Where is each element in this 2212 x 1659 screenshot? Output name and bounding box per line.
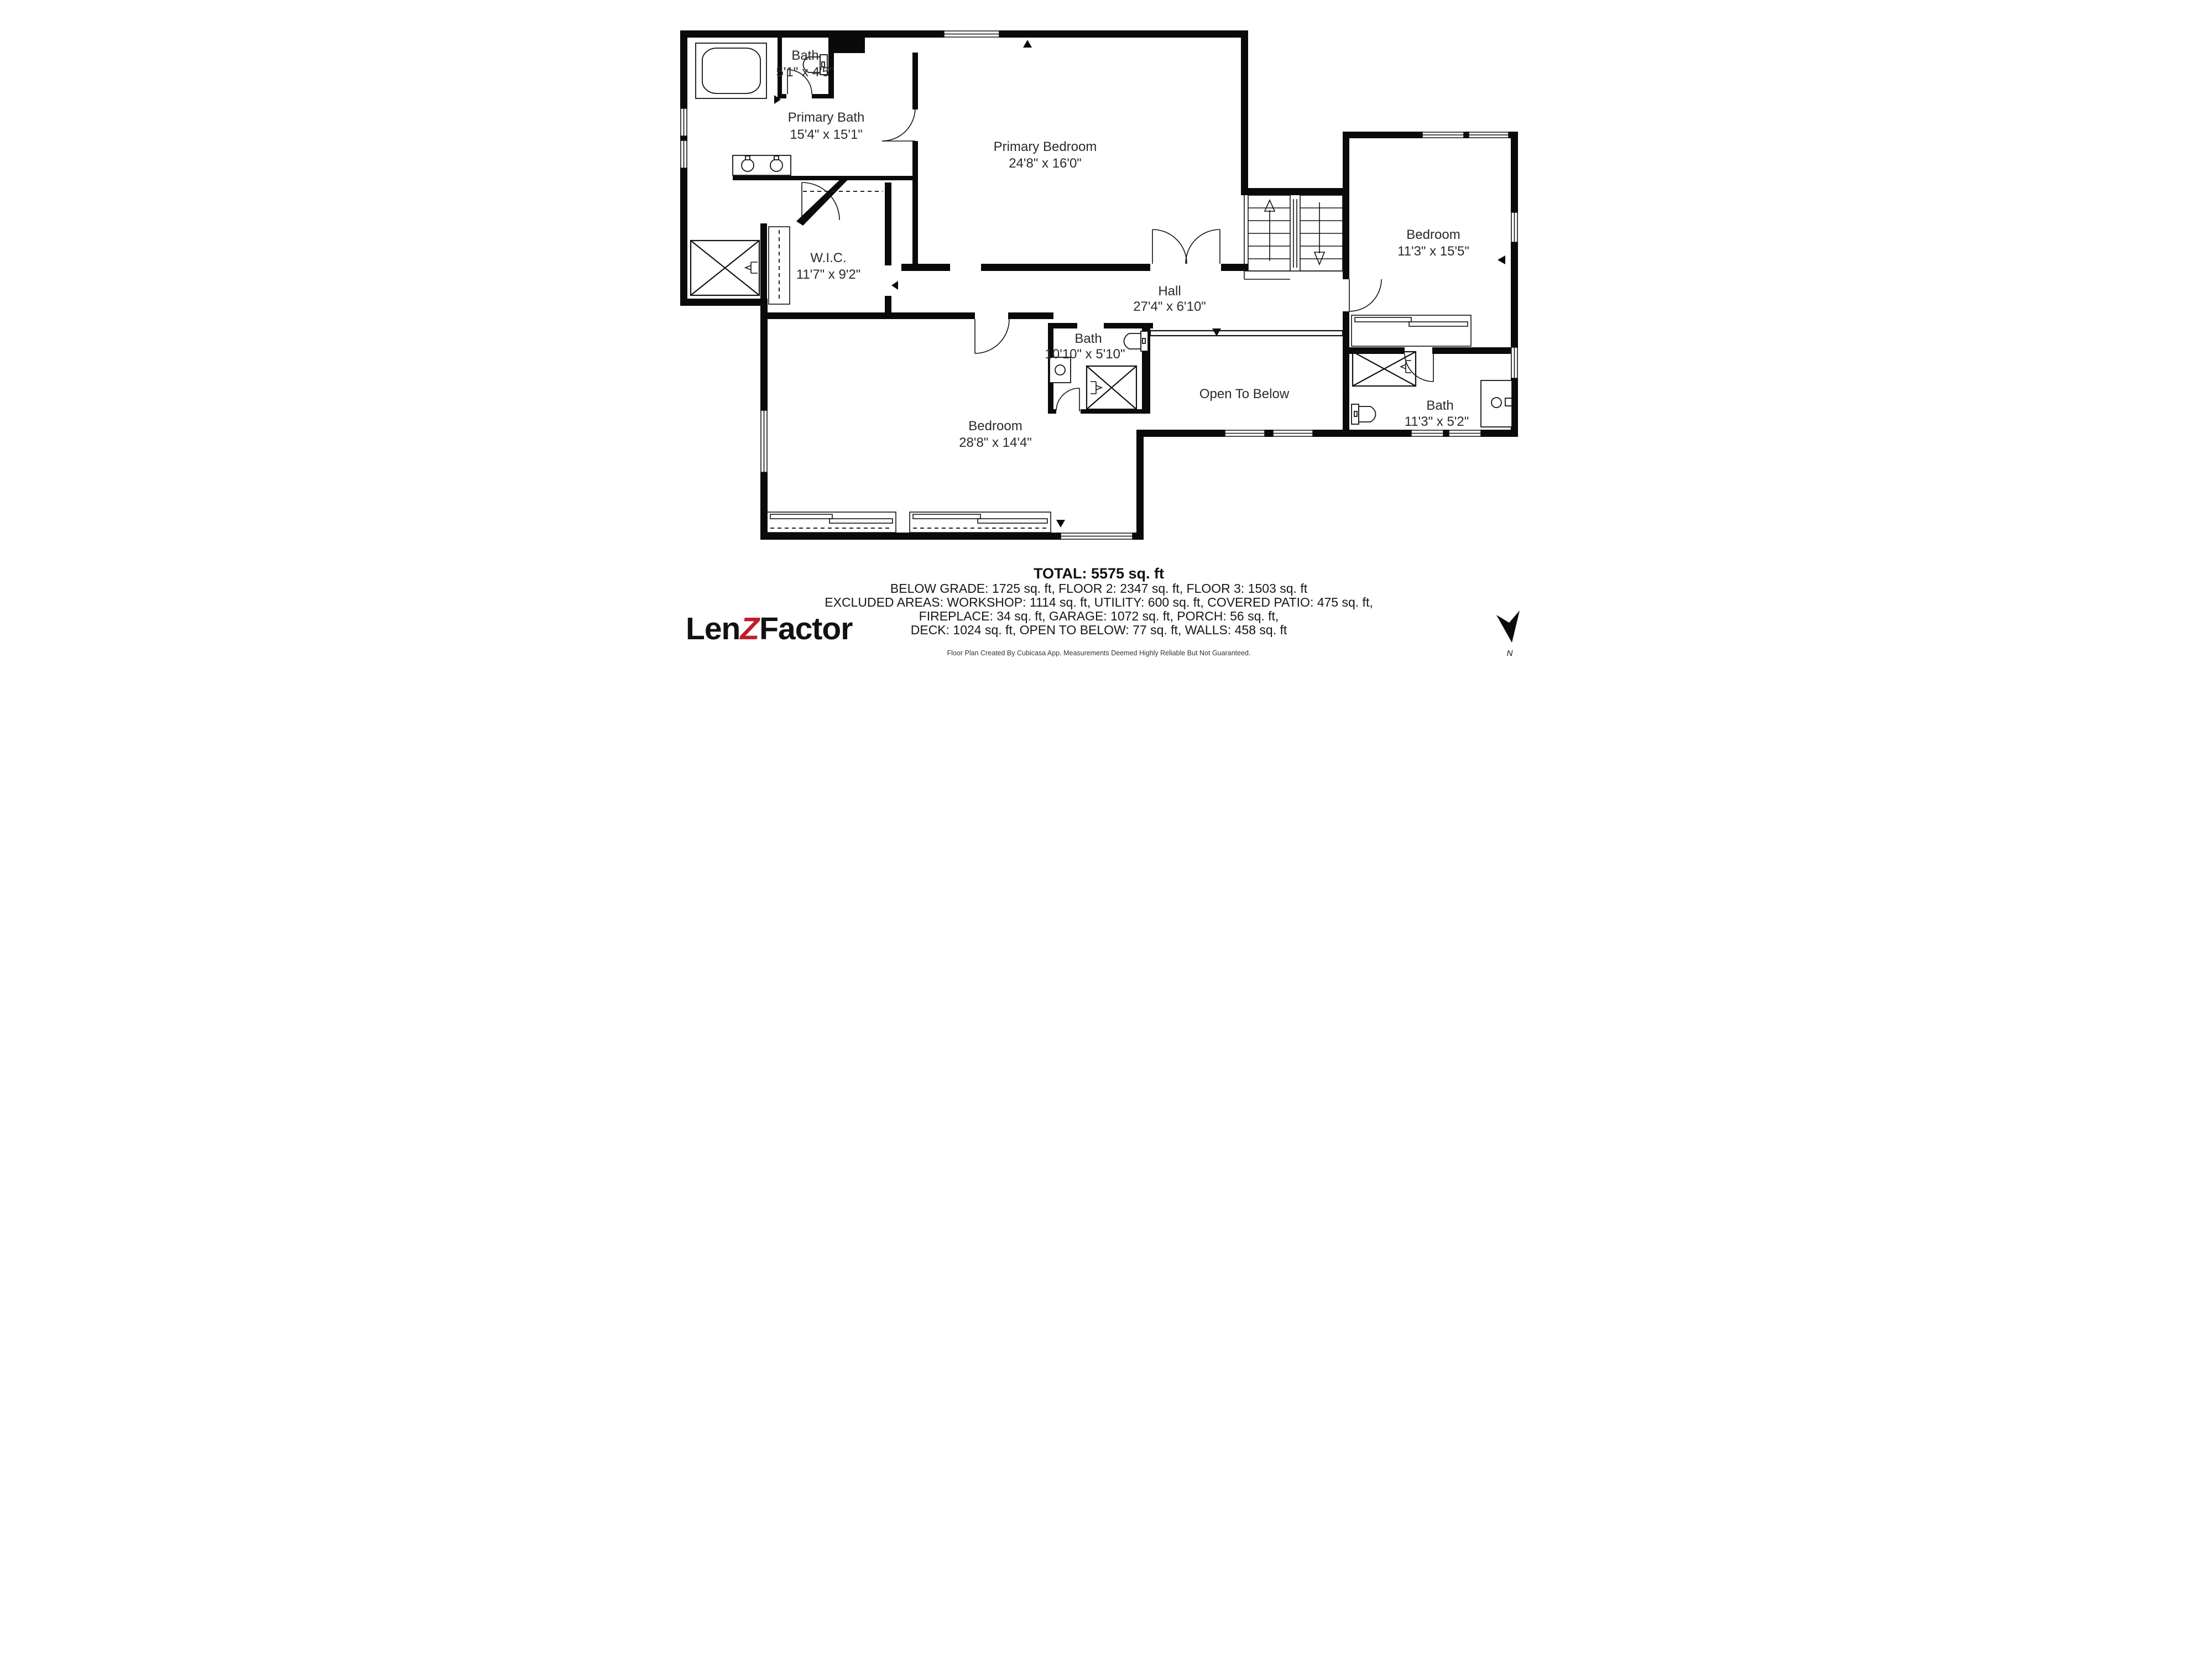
- staircase: [1244, 195, 1343, 279]
- logo-z-icon: Z: [739, 611, 760, 646]
- window-right-wall-1: [1511, 212, 1518, 242]
- door-double-right: [1186, 229, 1220, 264]
- door-right-bedroom: [1349, 279, 1381, 311]
- shower-center-bath-icon: [1087, 366, 1136, 409]
- window-top-primary-bedroom: [944, 30, 999, 38]
- diagonal-wall: [796, 176, 852, 226]
- summary-line-3: FIREPLACE: 34 sq. ft, GARAGE: 1072 sq. f…: [919, 609, 1279, 623]
- stairs-up-arrow: [1265, 200, 1275, 261]
- window-left-bedroom: [760, 410, 768, 472]
- railing-open-to-below: [1150, 331, 1343, 336]
- logo-factor: Factor: [759, 611, 853, 646]
- total-area-text: TOTAL: 5575 sq. ft: [1034, 565, 1164, 582]
- floor-plan-canvas: Bath 5'1" x 4'5" Primary Bath 15'4" x 15…: [664, 0, 1548, 669]
- dims-primary-bedroom: 24'8" x 16'0": [1009, 156, 1082, 171]
- label-bath-small: Bath: [791, 48, 818, 63]
- shower-primary-icon: [691, 241, 759, 295]
- dims-bath-small: 5'1" x 4'5": [776, 65, 834, 80]
- dims-bath-center: 10'10" x 5'10": [1045, 347, 1125, 362]
- door-right-bath: [1405, 354, 1433, 382]
- toilet-center-bath-icon: [1124, 331, 1148, 351]
- door-center-bath: [1056, 388, 1079, 411]
- lenzfactor-logo: LenZFactor: [686, 611, 853, 646]
- summary-line-4: DECK: 1024 sq. ft, OPEN TO BELOW: 77 sq.…: [911, 623, 1287, 637]
- dims-primary-bath: 15'4" x 15'1": [790, 127, 863, 142]
- label-bedroom-left: Bedroom: [968, 419, 1022, 434]
- window-right-bedroom-top-2: [1469, 132, 1509, 138]
- closet-bedroom-left-1: [767, 512, 896, 533]
- vanity-double-sink-icon: [733, 155, 791, 175]
- door-primary-bath: [882, 108, 915, 141]
- floor-plan-page: Bath 5'1" x 4'5" Primary Bath 15'4" x 15…: [664, 0, 1548, 669]
- window-bottom-right-bath-1: [1411, 430, 1443, 437]
- dims-bath-right: 11'3" x 5'2": [1405, 414, 1469, 429]
- bathtub-icon: [696, 43, 766, 98]
- door-double-left: [1152, 229, 1187, 264]
- label-primary-bath: Primary Bath: [788, 110, 865, 125]
- window-right-wall-2: [1511, 347, 1518, 378]
- window-bottom-bedroom: [1061, 533, 1133, 540]
- label-open-to-below: Open To Below: [1199, 387, 1290, 401]
- label-bath-right: Bath: [1426, 398, 1453, 413]
- room-labels: Bath 5'1" x 4'5" Primary Bath 15'4" x 15…: [776, 48, 1469, 450]
- svg-text:LenZFactor: LenZFactor: [686, 611, 853, 646]
- window-bottom-open-below-2: [1273, 430, 1313, 437]
- label-wic: W.I.C.: [810, 251, 846, 265]
- dims-bedroom-left: 28'8" x 14'4": [959, 435, 1032, 450]
- dims-hall: 27'4" x 6'10": [1133, 299, 1206, 314]
- shower-right-bath-icon: [1353, 352, 1416, 386]
- window-left-primary-bath-2: [680, 140, 687, 168]
- dims-bedroom-right: 11'3" x 15'5": [1397, 244, 1469, 259]
- label-bedroom-right: Bedroom: [1406, 227, 1460, 242]
- closet-bedroom-left-2: [910, 512, 1051, 533]
- summary-line-1: BELOW GRADE: 1725 sq. ft, FLOOR 2: 2347 …: [890, 581, 1308, 596]
- dims-wic: 11'7" x 9'2": [796, 267, 861, 282]
- exterior-walls: [680, 30, 1518, 540]
- disclaimer-text: Floor Plan Created By Cubicasa App. Meas…: [947, 649, 1251, 657]
- north-label: N: [1507, 649, 1513, 658]
- window-left-primary-bath-1: [680, 108, 687, 136]
- toilet-right-bath-icon: [1352, 404, 1376, 424]
- label-primary-bedroom: Primary Bedroom: [994, 139, 1097, 154]
- area-summary: TOTAL: 5575 sq. ft BELOW GRADE: 1725 sq.…: [825, 565, 1373, 657]
- label-hall: Hall: [1158, 284, 1181, 299]
- summary-line-2: EXCLUDED AREAS: WORKSHOP: 1114 sq. ft, U…: [825, 595, 1373, 609]
- label-bath-center: Bath: [1074, 331, 1102, 346]
- window-bottom-open-below-1: [1225, 430, 1265, 437]
- window-bottom-right-bath-2: [1449, 430, 1481, 437]
- windows: [680, 30, 1518, 540]
- wic-shelves: [769, 191, 883, 304]
- vanity-right-bath-icon: [1481, 380, 1512, 427]
- logo-len: Len: [686, 611, 740, 646]
- closet-right-bedroom: [1352, 315, 1471, 346]
- window-right-bedroom-top-1: [1422, 132, 1464, 138]
- north-arrow-icon: N: [1496, 611, 1520, 658]
- door-hall-bedroom: [975, 319, 1009, 353]
